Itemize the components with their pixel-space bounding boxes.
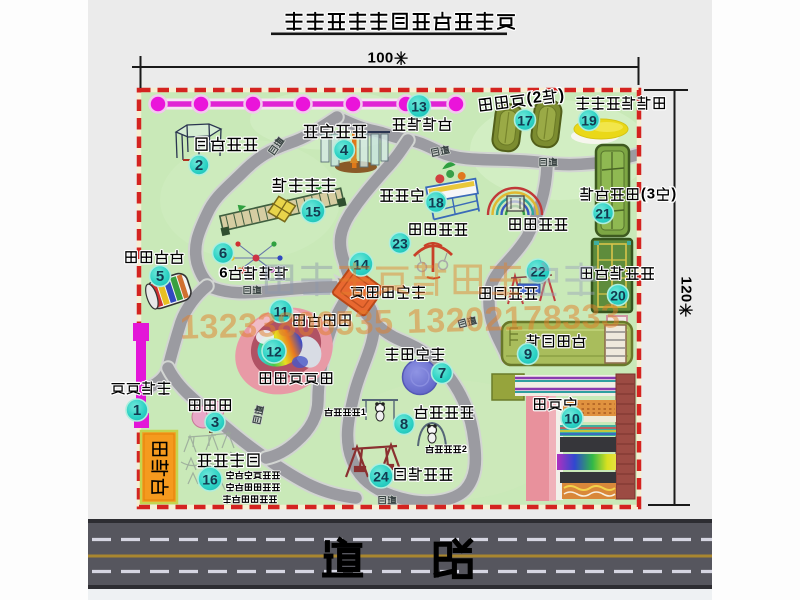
svg-text:6: 6 xyxy=(315,305,335,343)
svg-text:8: 8 xyxy=(400,416,408,433)
svg-text:2: 2 xyxy=(218,307,238,345)
svg-text:2: 2 xyxy=(195,157,203,174)
svg-text:16: 16 xyxy=(202,472,218,488)
svg-text:6: 6 xyxy=(219,245,227,262)
svg-text:5: 5 xyxy=(374,303,394,341)
svg-text:6: 6 xyxy=(219,265,227,282)
svg-text:3: 3 xyxy=(354,304,374,342)
svg-text:2: 2 xyxy=(484,300,504,338)
svg-text:3: 3 xyxy=(257,306,277,344)
svg-text:5: 5 xyxy=(156,268,164,285)
svg-text:3: 3 xyxy=(647,186,655,203)
svg-text:0: 0 xyxy=(385,50,393,67)
svg-text:12: 12 xyxy=(266,344,282,360)
svg-text:17: 17 xyxy=(517,113,533,129)
svg-text:18: 18 xyxy=(428,195,444,211)
svg-text:): ) xyxy=(671,186,676,203)
svg-text:0: 0 xyxy=(376,50,384,67)
svg-text:8: 8 xyxy=(542,299,562,337)
svg-text:8: 8 xyxy=(277,306,297,344)
svg-text:1: 1 xyxy=(678,276,695,284)
svg-text:5: 5 xyxy=(335,304,355,342)
svg-text:(: ( xyxy=(641,186,646,203)
svg-text:21: 21 xyxy=(595,206,611,222)
svg-text:4: 4 xyxy=(340,142,349,159)
svg-text:1: 1 xyxy=(361,407,366,417)
svg-text:0: 0 xyxy=(296,305,316,343)
svg-text:19: 19 xyxy=(581,113,597,129)
svg-text:3: 3 xyxy=(426,302,446,340)
svg-text:7: 7 xyxy=(523,299,543,337)
svg-text:1: 1 xyxy=(406,302,426,340)
svg-text:3: 3 xyxy=(199,308,219,346)
svg-text:3: 3 xyxy=(562,298,582,336)
svg-text:0: 0 xyxy=(678,294,695,302)
svg-text:1: 1 xyxy=(133,402,141,419)
svg-text:3: 3 xyxy=(601,297,621,335)
svg-text:0: 0 xyxy=(465,301,485,339)
svg-text:3: 3 xyxy=(238,307,258,345)
svg-text:2: 2 xyxy=(462,444,467,454)
svg-text:1: 1 xyxy=(180,308,200,346)
svg-text:7: 7 xyxy=(438,365,446,382)
svg-text:3: 3 xyxy=(211,414,219,431)
svg-text:9: 9 xyxy=(524,346,532,363)
svg-text:10: 10 xyxy=(564,411,580,427)
svg-text:15: 15 xyxy=(305,204,321,220)
svg-text:1: 1 xyxy=(368,50,376,67)
svg-text:24: 24 xyxy=(373,469,389,485)
svg-text:3: 3 xyxy=(581,298,601,336)
svg-text:2: 2 xyxy=(445,301,465,339)
svg-text:2: 2 xyxy=(678,285,695,293)
svg-text:23: 23 xyxy=(392,236,408,252)
svg-text:1: 1 xyxy=(504,300,524,338)
svg-text:13: 13 xyxy=(411,99,427,115)
